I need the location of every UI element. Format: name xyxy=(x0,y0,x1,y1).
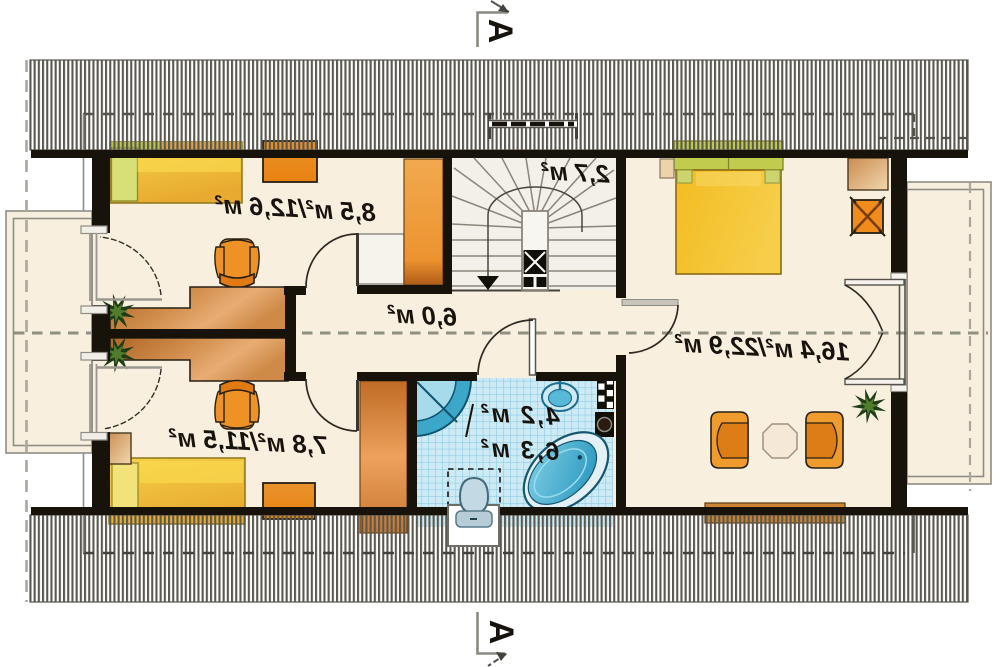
svg-text:2,7 м²: 2,7 м² xyxy=(540,157,612,189)
svg-text:6,3 м²: 6,3 м² xyxy=(478,434,560,466)
svg-text:6,0 м²: 6,0 м² xyxy=(385,300,458,332)
svg-text:A: A xyxy=(481,19,519,44)
svg-text:A: A xyxy=(482,620,520,645)
svg-text:4,2 м²: 4,2 м² xyxy=(478,399,561,431)
